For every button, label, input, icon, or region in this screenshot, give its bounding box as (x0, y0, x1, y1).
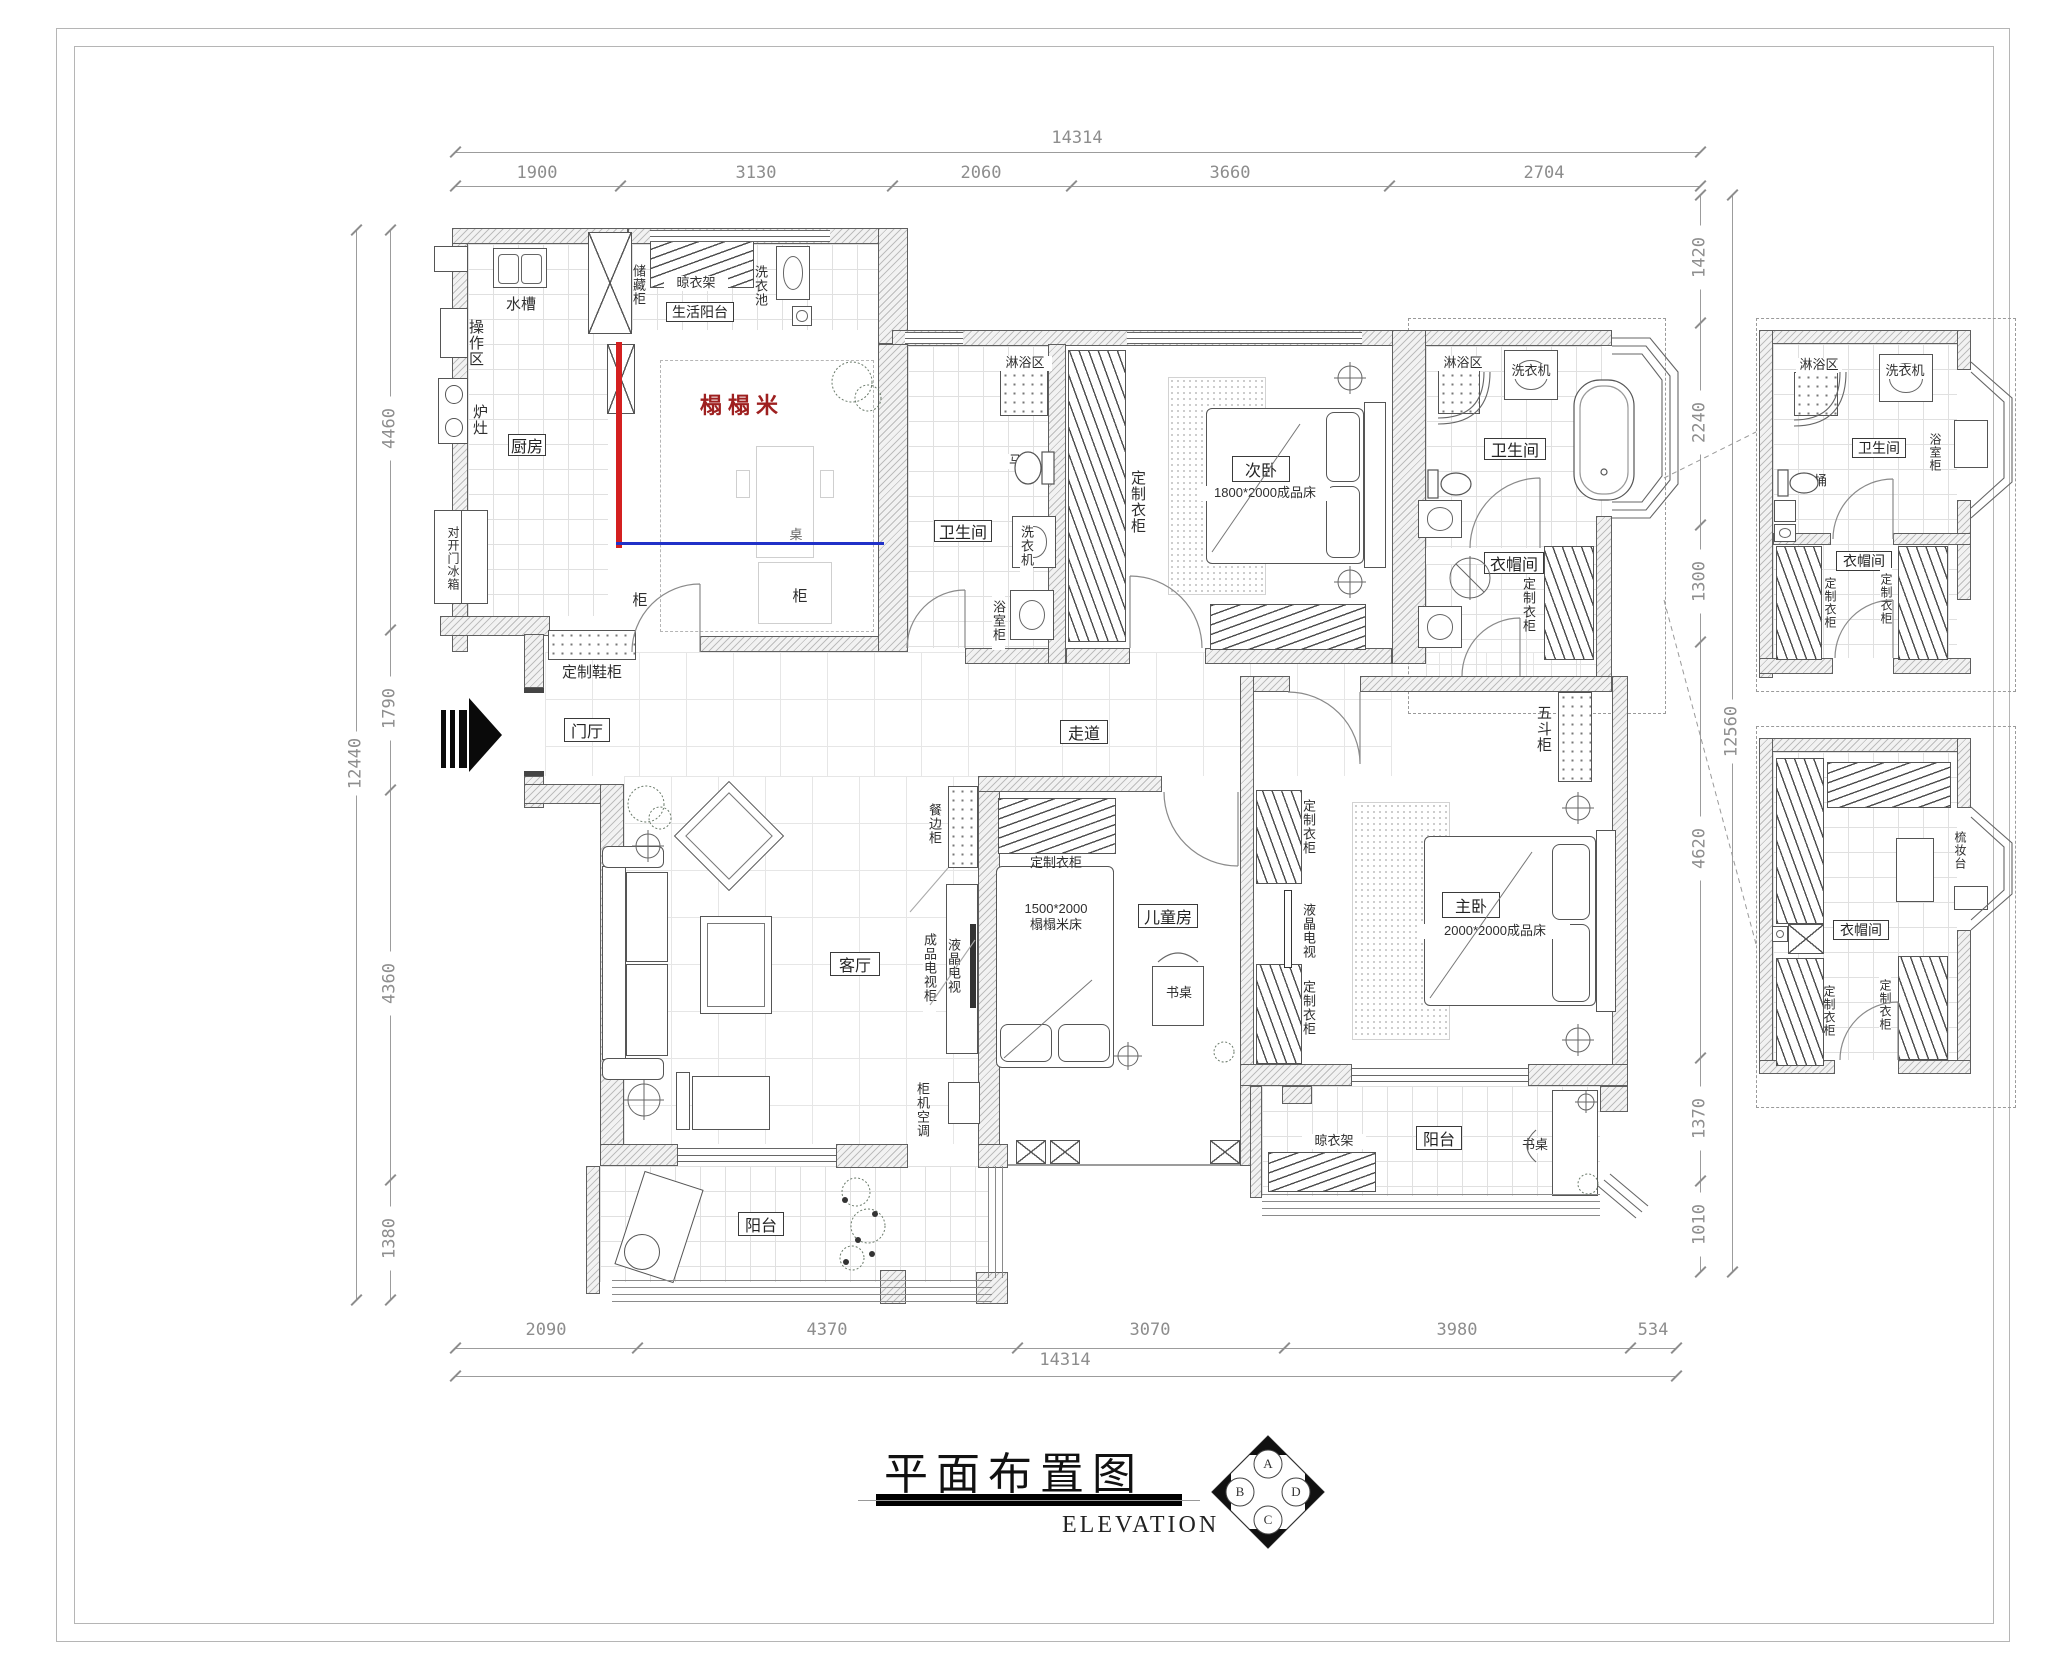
pillow (1058, 1024, 1110, 1062)
wall-segment (1957, 500, 1971, 600)
wall-cabinet (440, 308, 468, 358)
label-kids-bed-type: 榻榻米床 (1014, 918, 1098, 933)
wardrobe-hangers (1068, 350, 1126, 642)
floor-plan-page: 厨房 水槽 操作区 炉灶 对开门冰箱 定制鞋柜 生活阳台 储藏柜 晾衣架 洗衣池… (0, 0, 2048, 1656)
label-vanity: 浴室柜 (992, 592, 1005, 650)
label-drying-rack: 晾衣架 (664, 276, 728, 291)
label-kids-wardrobe: 定制衣柜 (1012, 856, 1100, 871)
tatami-chair (820, 470, 834, 498)
bathroom-vanity (1954, 420, 1988, 468)
label-wardrobe: 定制衣柜 (1880, 568, 1892, 630)
room-label-kitchen: 厨房 (508, 434, 546, 456)
room-label-bedroom2: 次卧 (1232, 456, 1290, 482)
dim-bottom-segment: 534 (1635, 1322, 1672, 1339)
room-label-bath2: 卫生间 (1484, 438, 1546, 460)
label-tv: 液晶电视 (947, 932, 960, 1000)
floor-drain (1774, 524, 1796, 542)
label-shoe-cabinet: 定制鞋柜 (546, 664, 638, 681)
wall-segment (836, 1144, 908, 1168)
wardrobe-hangers (1544, 546, 1594, 660)
label-table-char: 桌 (788, 528, 804, 543)
wall-segment (1528, 1064, 1628, 1086)
sofa-seat (626, 964, 668, 1056)
label-drying-rack: 晾衣架 (1302, 1134, 1366, 1149)
label-kids-desk: 书桌 (1158, 986, 1200, 1001)
wall-segment (878, 344, 908, 652)
label-shower-area: 淋浴区 (1436, 356, 1490, 371)
cabinet-xbox (1050, 1140, 1080, 1164)
label-shower-area: 淋浴区 (998, 356, 1052, 371)
washbasin (1418, 606, 1462, 648)
label-sink: 水槽 (497, 296, 545, 313)
dim-left-total: 12440 (348, 732, 365, 796)
bench (676, 1072, 690, 1130)
label-washer: 洗衣机 (1881, 364, 1929, 379)
tv-screen (1284, 890, 1292, 968)
balcony-railing (1262, 1194, 1600, 1216)
room-label-balcony-right: 阳台 (1416, 1126, 1462, 1150)
label-cabinet-char: 柜 (632, 592, 648, 609)
room-label-living: 客厅 (830, 952, 880, 976)
label-wardrobe: 定制衣柜 (1823, 980, 1835, 1042)
label-bedroom2-bed: 1800*2000成品床 (1200, 486, 1330, 501)
pillow (1000, 1024, 1052, 1062)
wall-segment (1759, 330, 1971, 344)
coffee-table (700, 916, 772, 1014)
wardrobe-hangers (1256, 964, 1302, 1064)
pillow (1326, 412, 1360, 482)
wall-segment (1600, 1086, 1628, 1112)
sofa-seat (626, 872, 668, 962)
label-tv: 液晶电视 (1302, 900, 1315, 962)
tv-screen (970, 924, 976, 1008)
window (1127, 332, 1362, 344)
island-table (1896, 838, 1934, 902)
small-cabinet (1774, 500, 1796, 522)
dim-bottom-total: 14314 (1036, 1352, 1093, 1369)
label-storage-cabinet: 储藏柜 (632, 252, 645, 318)
wall-segment (1250, 1086, 1262, 1198)
bathroom-vanity (1010, 590, 1054, 640)
floor-drain (792, 306, 812, 326)
washbasin (1418, 500, 1462, 538)
label-tv-stand: 成品电视柜 (923, 924, 936, 1012)
label-wardrobe: 定制衣柜 (1824, 572, 1836, 634)
shower-area-pan (1000, 370, 1048, 416)
drawing-subtitle: ELEVATION (1062, 1512, 1219, 1539)
wardrobe-hangers (1210, 604, 1366, 650)
dim-left-segment: 1380 (382, 1207, 399, 1271)
shower-area-pan (1794, 372, 1838, 416)
room-label-balcony-left: 阳台 (738, 1212, 784, 1236)
balcony-desk (1552, 1090, 1598, 1196)
wardrobe-hangers (1776, 758, 1824, 924)
label-cabinet-char: 柜 (792, 588, 808, 605)
wall-segment (1596, 516, 1612, 688)
dim-bottom-segment: 2090 (523, 1322, 570, 1339)
shower-area-pan (1438, 370, 1480, 414)
dim-left-segment: 4460 (382, 397, 399, 461)
wall-segment (978, 776, 1162, 792)
sofa-armrest (602, 846, 664, 868)
wall-segment (440, 616, 550, 636)
dim-left-segment: 1790 (382, 677, 399, 741)
window (905, 332, 963, 344)
label-balcony-desk: 书桌 (1518, 1138, 1552, 1153)
drawing-title: 平面布置图 (884, 1438, 1144, 1502)
tatami-chair (736, 470, 750, 498)
room-label-master: 主卧 (1442, 892, 1500, 918)
cabinet-air-conditioner (948, 1082, 980, 1124)
wall-segment (1957, 930, 1971, 1074)
label-dresser: 梳妆台 (1954, 824, 1966, 876)
wall-segment (1066, 648, 1130, 664)
wall-segment (1759, 658, 1833, 674)
label-wardrobe: 定制衣柜 (1302, 974, 1315, 1042)
balcony-railing (988, 1166, 1006, 1278)
dresser-stool (1954, 886, 1988, 910)
entry-door-stop (524, 688, 544, 693)
wardrobe-hangers (1898, 956, 1948, 1060)
title-underline-line (858, 1500, 1200, 1501)
wardrobe-hangers (1256, 790, 1302, 884)
kitchen-sink (493, 248, 547, 288)
red-annotation-line (616, 342, 622, 548)
window (678, 1148, 836, 1162)
wall-segment (1282, 1086, 1312, 1104)
blue-annotation-line (616, 542, 884, 545)
dimension-line (455, 186, 1700, 187)
label-washer: 洗衣机 (1020, 520, 1033, 572)
wall-segment (600, 1144, 678, 1166)
label-laundry-basin: 洗衣池 (754, 254, 767, 318)
wall-segment (1759, 330, 1773, 678)
dim-right-segment: 1370 (1692, 1087, 1709, 1151)
wall-segment (1957, 738, 1971, 808)
window (650, 230, 830, 242)
dimension-line (1008, 1164, 1248, 1166)
pillow (1326, 486, 1360, 558)
label-shower-area: 淋浴区 (1796, 358, 1842, 373)
wardrobe-hangers (1827, 762, 1951, 808)
wall-segment (524, 634, 544, 688)
wardrobe-hangers (1776, 958, 1824, 1066)
label-wardrobe: 定制衣柜 (1522, 574, 1535, 636)
wall-segment (1360, 676, 1612, 692)
dim-top-segment: 1900 (514, 165, 561, 182)
label-stove: 炉灶 (472, 394, 487, 446)
label-toilet: 马桶 (1004, 454, 1040, 469)
dim-bottom-segment: 3980 (1434, 1322, 1481, 1339)
sofa-armrest (602, 1058, 664, 1080)
wall-segment (1205, 648, 1392, 664)
side-table (692, 1076, 770, 1130)
wall-segment (1893, 533, 1971, 545)
pillow (1552, 844, 1590, 920)
dimension-line (390, 230, 391, 1300)
cabinet-xbox (1788, 924, 1824, 954)
room-label-service-balcony: 生活阳台 (666, 302, 734, 322)
cabinet-xbox (588, 232, 632, 334)
room-label-kids: 儿童房 (1138, 904, 1198, 928)
label-vanity: 浴室柜 (1929, 428, 1941, 476)
dim-top-segment: 3130 (733, 165, 780, 182)
dim-left-segment: 4360 (382, 952, 399, 1016)
wall-segment (978, 1144, 1008, 1168)
wall-segment (878, 228, 908, 344)
dish-rack (434, 246, 468, 272)
bedroom2-headboard (1364, 402, 1386, 568)
label-wardrobe: 定制衣柜 (1879, 974, 1891, 1036)
label-kids-bed-size: 1500*2000 (1014, 902, 1098, 917)
dim-right-segment: 2240 (1692, 391, 1709, 455)
wall-segment (700, 636, 908, 652)
wall-segment (586, 1166, 600, 1294)
wall-segment (1240, 1064, 1352, 1086)
wall-segment (1759, 738, 1773, 1074)
shoe-cabinet (548, 630, 636, 660)
wardrobe-hangers (1776, 546, 1822, 660)
room-label-bath1: 卫生间 (934, 520, 992, 542)
label-sideboard: 餐边柜 (928, 796, 941, 852)
label-chest: 五斗柜 (1536, 696, 1551, 762)
room-label-corridor: 走道 (1060, 720, 1108, 744)
fridge (434, 510, 488, 604)
dim-bottom-segment: 3070 (1127, 1322, 1174, 1339)
label-wardrobe: 定制衣柜 (1302, 796, 1315, 858)
drying-rack (1268, 1152, 1376, 1192)
wardrobe-hangers (998, 798, 1116, 854)
detail-label-cloak2: 衣帽间 (1833, 920, 1889, 940)
window (1352, 1068, 1528, 1082)
room-label-cloak: 衣帽间 (1484, 552, 1544, 574)
round-table (624, 1234, 660, 1270)
entry-door-stop (524, 771, 544, 776)
dim-top-segment: 3660 (1207, 165, 1254, 182)
label-master-bed: 2000*2000成品床 (1420, 924, 1570, 939)
wardrobe-hangers (1898, 546, 1948, 660)
corridor-floor (545, 652, 1392, 776)
master-headboard (1596, 830, 1616, 1012)
dim-right-segment: 4620 (1692, 817, 1709, 881)
dim-top-segment: 2704 (1521, 165, 1568, 182)
cabinet-xbox (1016, 1140, 1046, 1164)
dim-right-segment: 1420 (1692, 226, 1709, 290)
floor-drain (1772, 926, 1788, 942)
dim-bottom-segment: 4370 (804, 1322, 851, 1339)
cabinet-xbox (1210, 1140, 1240, 1164)
stove (438, 378, 468, 444)
label-ac: 柜机空调 (916, 1076, 929, 1144)
dim-right-segment: 1010 (1692, 1193, 1709, 1257)
dim-right-segment: 1300 (1692, 550, 1709, 614)
label-tatami: 榻榻米 (700, 388, 784, 420)
room-label-foyer: 门厅 (564, 718, 610, 742)
sofa-back (602, 866, 626, 1060)
wall-segment (1957, 330, 1971, 370)
dim-top-total: 14314 (1048, 130, 1105, 147)
laundry-basin (776, 246, 810, 300)
label-toilet: 马桶 (1798, 474, 1830, 489)
dimension-line (455, 152, 1700, 153)
sideboard (948, 786, 978, 868)
detail-label-bath: 卫生间 (1852, 438, 1906, 458)
label-fridge: 对开门冰箱 (447, 518, 459, 598)
dim-top-segment: 2060 (958, 165, 1005, 182)
label-washer: 洗衣机 (1506, 364, 1556, 379)
dimension-line (455, 1376, 1676, 1377)
label-work-area: 操作区 (468, 308, 483, 378)
wall-segment (1893, 658, 1971, 674)
wall-segment (1759, 738, 1971, 752)
label-wardrobe: 定制衣柜 (1130, 464, 1145, 540)
label-bathtub: 浴缸 (1594, 414, 1607, 472)
dim-right-total: 12560 (1724, 700, 1741, 764)
balcony-railing (612, 1280, 992, 1304)
five-drawer-chest (1558, 692, 1592, 782)
wall-segment (1253, 676, 1290, 692)
wall-segment (1898, 1060, 1971, 1074)
